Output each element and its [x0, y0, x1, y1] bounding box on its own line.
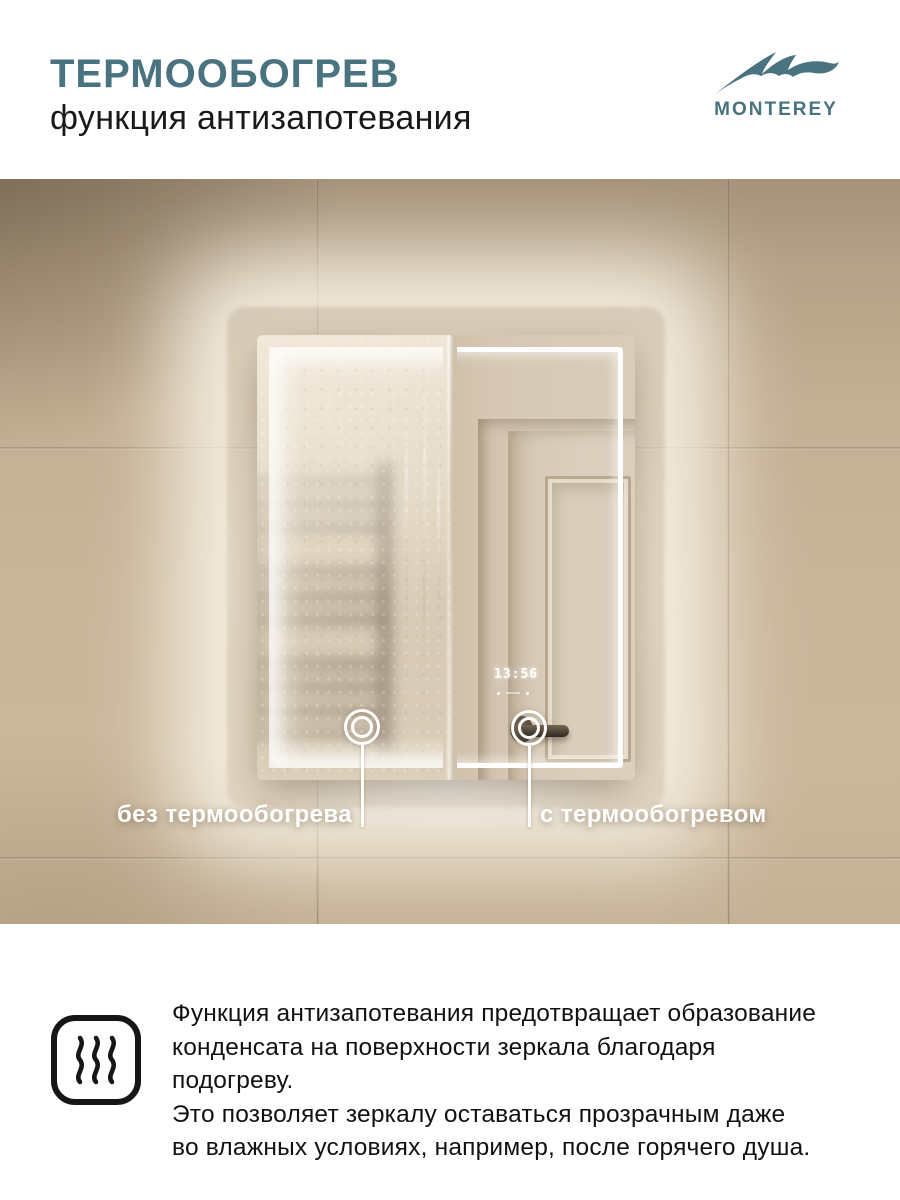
product-promo-card: ТЕРМООБОГРЕВ функция антизапотевания MON…: [0, 0, 900, 1200]
tile-seam-horizontal: [0, 857, 900, 860]
drip-streak: [405, 405, 408, 645]
callout-line-left: [361, 745, 364, 827]
callout-ring-left-inner: [351, 716, 373, 738]
touch-sensor-dots: [497, 691, 529, 695]
callout-line-right: [528, 746, 531, 827]
heat-waves-icon: [50, 1014, 142, 1106]
label-with-heating: с термообогревом: [540, 801, 767, 829]
label-without-heating: без термообогрева: [0, 801, 352, 829]
led-mirror: 13:56: [257, 335, 635, 780]
description-text: Функция антизапотевания предотвращает об…: [172, 997, 832, 1165]
bathroom-photo: 13:56 без термообогрева с термообогревом: [0, 179, 900, 924]
drip-streak: [437, 445, 440, 645]
drip-streak: [423, 375, 426, 675]
page-subtitle: функция антизапотевания: [50, 99, 472, 138]
callout-ring-right-inner: [518, 717, 540, 739]
fog-boundary: [447, 335, 452, 780]
mirror-clear-half: 13:56: [450, 335, 635, 780]
door-panel-reflection: [545, 476, 631, 762]
brand-wave-icon: [712, 48, 840, 98]
clock-display: 13:56: [494, 667, 538, 682]
page-title: ТЕРМООБОГРЕВ: [50, 52, 400, 97]
brand-logo: MONTEREY: [696, 48, 856, 121]
brand-wordmark: MONTEREY: [696, 99, 856, 121]
